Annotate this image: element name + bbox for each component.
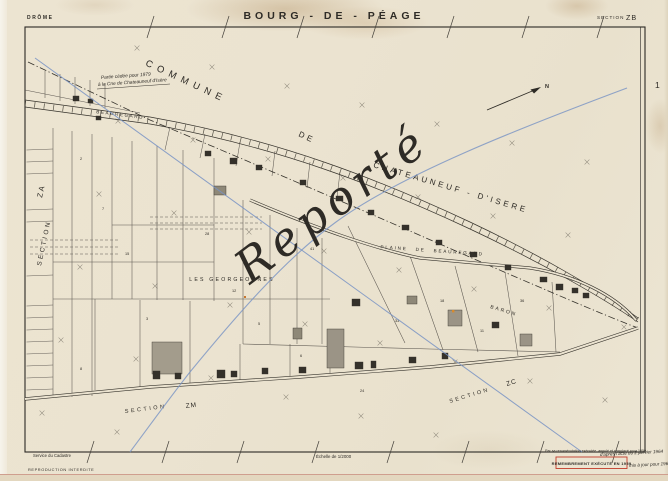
building [371,361,376,368]
red-stamp: REMEMBREMENT EXÉCUTÉ EN 1959 [552,457,632,469]
plate-number: 1 [655,80,660,90]
grid-crosses [40,46,627,438]
parcel-number: 36 [520,299,524,303]
publisher-line2: REPRODUCTION INTERDITE [28,467,94,472]
building [505,265,511,270]
scale-label: Échelle de 1/2000 [316,454,352,459]
building [556,284,563,290]
blue-survey-line [35,58,582,452]
building [175,373,181,379]
stamp-handwriting-2: mis à jour pour 1965 – ZB [629,460,668,468]
building [299,367,306,373]
label-baron: BARON [489,304,517,318]
parcel-number: 9 [352,299,354,303]
cadastral-map-sheet: DRÔME BOURG - DE - PÉAGE SECTION ZB 1 [0,0,668,480]
section-word: SECTION [597,15,624,20]
label-section-za-code: ZA [35,183,47,198]
building [409,357,416,363]
label-section-zc-code: ZC [506,378,518,388]
building [256,165,262,170]
parcel-number: 15 [125,252,129,256]
building [368,210,374,215]
label-section-zm-word: SECTION [125,404,167,415]
label-commune-de: DE [297,130,316,145]
publisher-line1: Service du Cadastre [33,453,72,458]
parcel-number: 11 [480,329,484,333]
map-frame [25,27,645,452]
stamp-text: REMEMBREMENT EXÉCUTÉ EN 1959 [552,461,632,466]
page-title: BOURG - DE - PÉAGE [243,9,424,22]
building [583,293,589,298]
label-plaine-de-beauregard: PLAINE DE BEAUREGARD [380,244,484,256]
building [214,186,226,195]
section-code: ZB [626,13,637,22]
parcel-number: 28 [205,232,209,236]
orange-speck [452,310,454,312]
building [73,96,79,101]
north-arrow: N [487,84,549,110]
building [540,277,547,282]
building [402,225,409,230]
label-section-zc-word: SECTION [449,387,491,405]
building [407,296,417,304]
parcel-number: 18 [440,299,444,303]
building [572,288,578,293]
building [231,371,237,377]
department-label: DRÔME [27,13,54,21]
parcel-number: 7 [102,207,104,211]
parcel-number: 5 [258,322,260,326]
building [217,370,225,378]
parcel-number: 2 [80,157,82,161]
label-section-zm-code: ZM [185,402,197,410]
parcel-number: 12 [232,289,236,293]
building [262,368,268,374]
north-arrow-head [531,87,542,94]
building [96,116,101,120]
label-beauregard-road: BEAUREGARD [96,109,144,120]
orange-speck [244,296,246,298]
building [300,180,306,185]
building [520,334,532,346]
building [436,240,442,245]
parcel-number: 3 [146,317,148,321]
building [448,310,462,326]
building [293,328,302,339]
building [152,342,182,374]
parcel-number: 6 [300,354,302,358]
building [230,158,237,164]
parcel-number: 8 [80,367,82,371]
parcel-number: 24 [360,389,364,393]
building [153,371,160,379]
building [205,151,211,156]
north-label: N [545,84,549,90]
label-section-za-word: SECTION [36,220,52,267]
building [492,322,499,328]
building [355,362,363,369]
building [327,329,344,368]
